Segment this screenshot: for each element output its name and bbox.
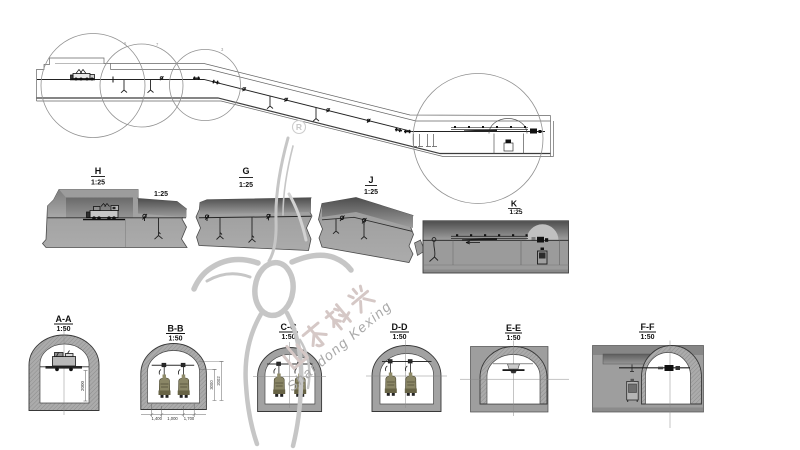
svg-text:1,400: 1,400 xyxy=(151,416,162,421)
svg-text:1:50: 1:50 xyxy=(392,334,406,341)
svg-text:1:50: 1:50 xyxy=(56,326,70,333)
svg-text:A-A: A-A xyxy=(56,314,72,324)
svg-text:1:50: 1:50 xyxy=(281,334,295,341)
svg-text:1:25: 1:25 xyxy=(364,189,378,196)
svg-text:K: K xyxy=(511,199,518,209)
svg-text:1:25: 1:25 xyxy=(154,191,168,198)
svg-text:1:50: 1:50 xyxy=(506,335,520,342)
svg-text:1:25: 1:25 xyxy=(509,209,522,216)
svg-text:H: H xyxy=(95,166,102,176)
svg-text:D-D: D-D xyxy=(392,322,408,332)
svg-text:R: R xyxy=(296,122,302,132)
svg-text:2000: 2000 xyxy=(80,380,85,391)
svg-text:1:25: 1:25 xyxy=(239,182,253,189)
svg-text:J: J xyxy=(368,175,373,185)
svg-text:B-B: B-B xyxy=(168,324,184,334)
svg-text:G: G xyxy=(242,166,249,176)
svg-text:1,000: 1,000 xyxy=(167,416,178,421)
svg-text:F-F: F-F xyxy=(641,322,655,332)
svg-text:3000: 3000 xyxy=(209,380,214,390)
svg-text:1:25: 1:25 xyxy=(91,180,105,187)
svg-text:1,700: 1,700 xyxy=(184,416,195,421)
svg-text:2002: 2002 xyxy=(216,376,221,386)
svg-text:1:50: 1:50 xyxy=(640,334,654,341)
svg-text:1:50: 1:50 xyxy=(168,336,182,343)
svg-text:E-E: E-E xyxy=(506,323,521,333)
